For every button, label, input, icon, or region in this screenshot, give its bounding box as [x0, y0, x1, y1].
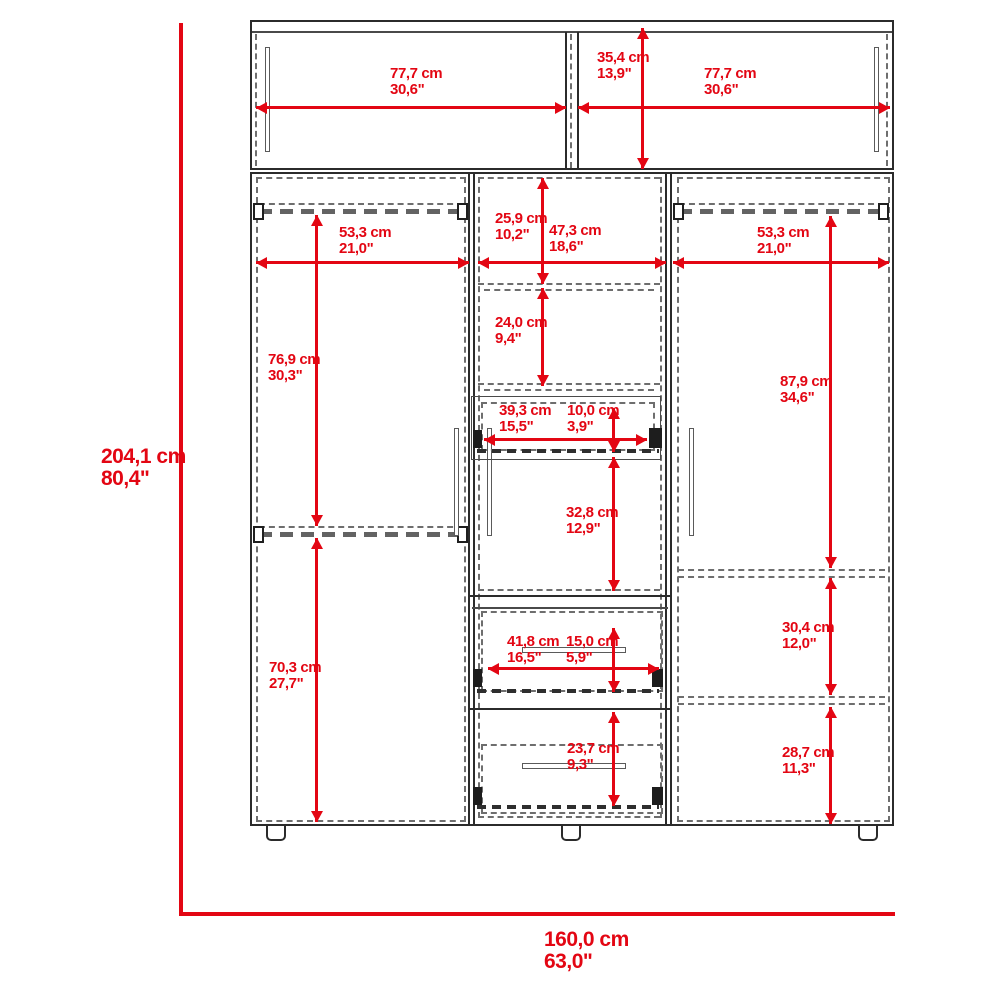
drawer1-width-arrow — [484, 438, 647, 441]
body-divider-right-b — [670, 172, 672, 826]
left-width-arrow — [256, 261, 469, 264]
right-rod-bracket-right-icon — [878, 203, 889, 220]
middle-shelf2-dashed-b — [484, 389, 654, 391]
hutch-right-door-dashed-edge — [886, 34, 888, 166]
right-shelf2-dashed-a — [678, 696, 885, 698]
drawer1-slide-bracket-right-icon — [649, 428, 662, 448]
overall-width-line — [179, 912, 895, 916]
right-width-arrow — [673, 261, 889, 264]
right-lower-height-label: 28,7 cm11,3" — [782, 745, 834, 777]
middle-dashed-edge-left — [478, 177, 480, 818]
drawer-divider-line — [468, 708, 672, 710]
middle-bottom-dashed — [478, 816, 660, 818]
drawer2-height-label: 15,0 cm5,9" — [566, 634, 618, 666]
drawer3-slide-bracket-right-icon — [652, 787, 663, 805]
right-rod-bracket-left-icon — [673, 203, 684, 220]
hutch-left-door-handle — [265, 47, 270, 152]
left-upper-height-label: 76,9 cm30,3" — [268, 352, 320, 384]
mid-width-arrow — [478, 261, 666, 264]
wardrobe-dimension-diagram: 204,1 cm80,4" 160,0 cm63,0" 77,7 cm30,6"… — [0, 0, 1000, 1000]
left-hanging-rod-2 — [259, 532, 463, 537]
hutch-left-door-dashed-edge — [255, 34, 257, 166]
right-foot — [858, 826, 878, 841]
mid-width-label: 47,3 cm18,6" — [549, 223, 601, 255]
left-rod1-bracket-right-icon — [457, 203, 468, 220]
body-divider-left-b — [473, 172, 475, 826]
drawer1-height-label: 10,0 cm3,9" — [567, 403, 619, 435]
middle-dashed-edge-right — [660, 177, 662, 818]
right-shelf2-dashed-b — [678, 703, 885, 705]
hutch-right-door-handle — [874, 47, 879, 152]
middle-shelf2-dashed-a — [478, 383, 660, 385]
right-door-handle — [689, 428, 694, 536]
hutch-left-width-label: 77,7 cm30,6" — [390, 66, 442, 98]
mid-top-height-label: 25,9 cm10,2" — [495, 211, 547, 243]
mid-shelf-height-label: 24,0 cm9,4" — [495, 315, 547, 347]
left-door-handle — [454, 428, 459, 536]
hutch-left-width-arrow — [256, 106, 566, 109]
body-divider-right-a — [665, 172, 667, 826]
left-rod1-support-line — [259, 203, 463, 205]
left-rod2-support-line — [259, 526, 463, 528]
drawer2-slide-bracket-left-icon — [473, 669, 482, 687]
left-foot — [266, 826, 286, 841]
left-rod1-bracket-left-icon — [253, 203, 264, 220]
middle-top-dashed — [478, 177, 660, 179]
drawer3-slide-bracket-left-icon — [473, 787, 482, 805]
drawer3-height-label: 23,7 cm9,3" — [567, 741, 619, 773]
left-hanging-rod-1 — [259, 209, 463, 214]
right-rod-support-line — [679, 203, 884, 205]
middle-solid-shelf-line — [470, 595, 670, 597]
hutch-divider-dashed — [570, 34, 572, 168]
left-door-dashed-outline — [256, 177, 466, 822]
middle-shelf1-dashed-a — [478, 283, 660, 285]
right-door-dashed-outline — [677, 177, 890, 822]
overall-height-label: 204,1 cm80,4" — [101, 446, 186, 490]
drawer2-rail — [477, 689, 659, 693]
drawer1-width-label: 39,3 cm15,5" — [499, 403, 551, 435]
right-shelf1-dashed-a — [678, 569, 885, 571]
right-shelf1-dashed-b — [678, 576, 885, 578]
right-upper-height-label: 87,9 cm34,6" — [780, 374, 832, 406]
hutch-right-width-arrow — [578, 106, 890, 109]
overall-width-label: 160,0 cm63,0" — [544, 929, 629, 973]
left-rod2-bracket-left-icon — [253, 526, 264, 543]
drawer1-slide-bracket-left-icon — [473, 430, 482, 448]
drawer2-top-line — [472, 607, 668, 609]
right-width-label: 53,3 cm21,0" — [757, 225, 809, 257]
drawer2-width-arrow — [488, 667, 659, 670]
hutch-right-width-label: 77,7 cm30,6" — [704, 66, 756, 98]
body-divider-left-a — [468, 172, 470, 826]
hutch-top-inner-line — [252, 31, 892, 33]
right-middle-height-label: 30,4 cm12,0" — [782, 620, 834, 652]
middle-foot — [561, 826, 581, 841]
hutch-height-label: 35,4 cm13,9" — [597, 50, 649, 82]
middle-open-bottom-dashed — [478, 589, 660, 591]
drawer2-width-label: 41,8 cm16,5" — [507, 634, 559, 666]
hutch-outline — [250, 20, 894, 170]
mid-open-height-label: 32,8 cm12,9" — [566, 505, 618, 537]
drawer3-rail — [477, 805, 659, 809]
middle-shelf1-dashed-b — [484, 289, 654, 291]
left-lower-height-label: 70,3 cm27,7" — [269, 660, 321, 692]
drawer1-rail — [477, 449, 659, 453]
right-hanging-rod — [679, 209, 884, 214]
left-width-label: 53,3 cm21,0" — [339, 225, 391, 257]
